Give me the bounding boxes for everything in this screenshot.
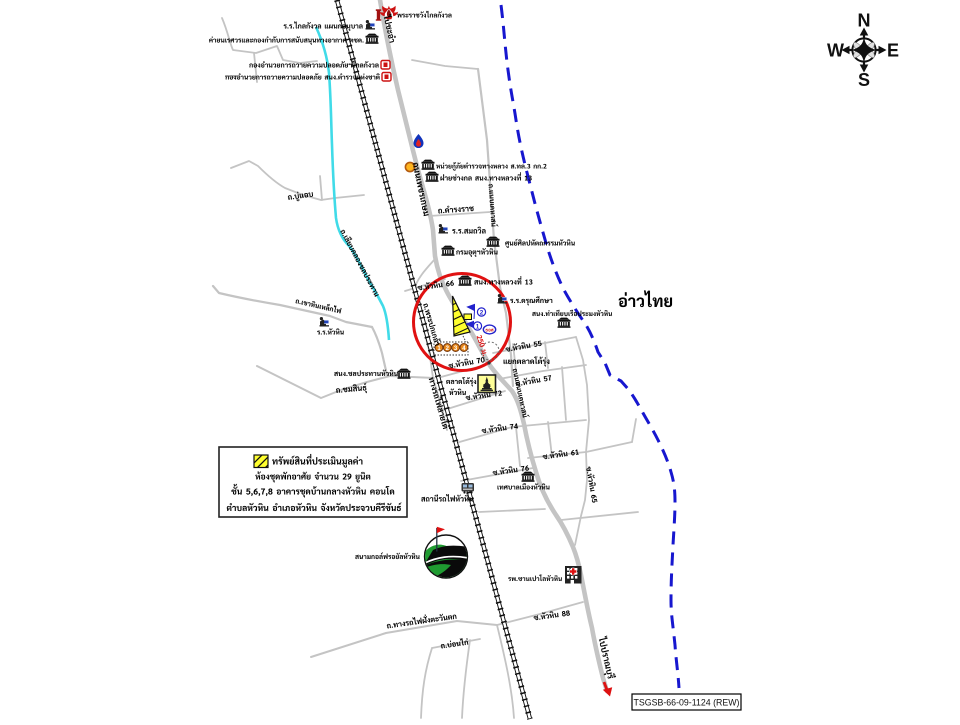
svg-text:E: E <box>887 41 899 61</box>
svg-text:1: 1 <box>476 324 480 331</box>
svg-text:N: N <box>858 11 871 31</box>
svg-text:2: 2 <box>480 310 484 317</box>
svg-text:W: W <box>827 41 844 61</box>
svg-text:S: S <box>858 70 870 90</box>
svg-text:TSGSB-66-09-1124 (REW): TSGSB-66-09-1124 (REW) <box>634 698 740 708</box>
